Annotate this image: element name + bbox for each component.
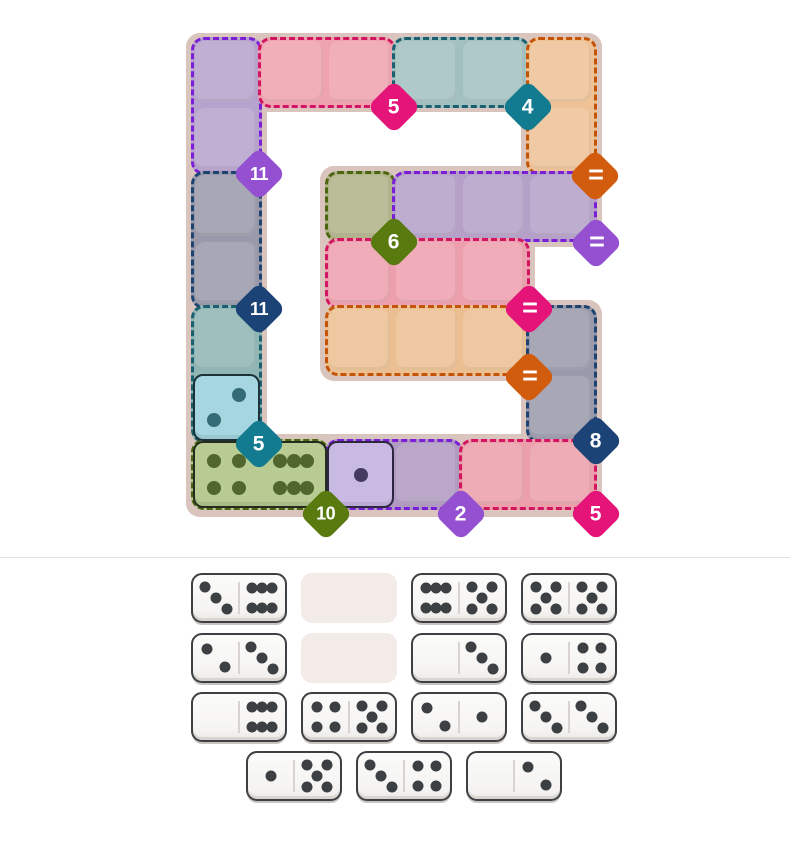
pip bbox=[596, 642, 607, 653]
pip bbox=[377, 723, 388, 734]
region-cell bbox=[262, 41, 323, 102]
pip bbox=[541, 712, 552, 723]
badge-label: = bbox=[522, 362, 538, 389]
domino-face-left bbox=[193, 575, 239, 621]
pip bbox=[232, 481, 246, 495]
badge-label: = bbox=[589, 228, 605, 255]
tray-domino-2-1[interactable] bbox=[411, 692, 507, 742]
pip bbox=[232, 388, 246, 402]
pip bbox=[300, 481, 314, 495]
pip bbox=[267, 582, 278, 593]
pip bbox=[273, 481, 287, 495]
tray-domino-6-5[interactable] bbox=[411, 573, 507, 623]
badge-label: 5 bbox=[253, 434, 265, 455]
pip bbox=[220, 662, 231, 673]
pip bbox=[541, 780, 552, 791]
pip bbox=[376, 771, 387, 782]
tray-domino-0-3[interactable] bbox=[411, 633, 507, 683]
pip bbox=[356, 723, 367, 734]
tray-domino-3-3[interactable] bbox=[521, 692, 617, 742]
pip bbox=[587, 593, 598, 604]
domino-divider bbox=[293, 760, 295, 792]
domino-face-right bbox=[349, 694, 395, 740]
badge-label: 11 bbox=[250, 300, 268, 318]
tray-domino-0-6[interactable] bbox=[191, 692, 287, 742]
pip bbox=[330, 701, 341, 712]
pip bbox=[596, 663, 607, 674]
region-pink-bottom[interactable] bbox=[459, 439, 597, 510]
pip bbox=[266, 771, 277, 782]
pip bbox=[311, 701, 322, 712]
pip bbox=[267, 663, 278, 674]
tray-domino-3-4[interactable] bbox=[356, 751, 452, 801]
pip bbox=[201, 643, 212, 654]
pip bbox=[300, 454, 314, 468]
pip bbox=[551, 581, 562, 592]
tray-empty-slot bbox=[301, 633, 397, 683]
tray-domino-5-5[interactable] bbox=[521, 573, 617, 623]
pip bbox=[367, 712, 378, 723]
pip bbox=[477, 653, 488, 664]
domino-face-right bbox=[459, 635, 505, 681]
pip bbox=[221, 603, 232, 614]
badge-label: 5 bbox=[388, 97, 400, 118]
tray-divider bbox=[0, 557, 790, 558]
region-cell bbox=[195, 41, 256, 102]
region-orange-mid[interactable] bbox=[325, 305, 530, 376]
domino-face-left bbox=[468, 753, 514, 799]
tray-row bbox=[191, 633, 617, 683]
pip bbox=[597, 581, 608, 592]
pip bbox=[597, 722, 608, 733]
pip bbox=[587, 712, 598, 723]
pip bbox=[330, 722, 341, 733]
pip bbox=[207, 413, 221, 427]
tray-domino-1-4[interactable] bbox=[521, 633, 617, 683]
pip bbox=[257, 653, 268, 664]
tray-row bbox=[191, 692, 617, 742]
domino-face-left bbox=[248, 753, 294, 799]
domino-face-left bbox=[523, 694, 569, 740]
pip bbox=[431, 781, 442, 792]
pip bbox=[551, 722, 562, 733]
pip bbox=[412, 781, 423, 792]
domino-puzzle-app: 5411=6=11==851025 bbox=[0, 0, 790, 842]
pip bbox=[597, 604, 608, 615]
domino-face-right bbox=[404, 753, 450, 799]
domino-divider bbox=[458, 582, 460, 614]
pip bbox=[441, 582, 452, 593]
tray-domino-0-2[interactable] bbox=[466, 751, 562, 801]
badge-label: 2 bbox=[455, 504, 467, 525]
domino-face-left bbox=[358, 753, 404, 799]
pip bbox=[311, 722, 322, 733]
pip bbox=[576, 581, 587, 592]
domino-face-right bbox=[459, 694, 505, 740]
pip bbox=[312, 771, 323, 782]
tray-row bbox=[246, 751, 562, 801]
pip bbox=[273, 454, 287, 468]
pip bbox=[577, 642, 588, 653]
pip bbox=[541, 593, 552, 604]
pip bbox=[287, 481, 301, 495]
region-cell bbox=[329, 309, 390, 370]
pip bbox=[431, 760, 442, 771]
pip bbox=[530, 604, 541, 615]
domino-face-right bbox=[239, 575, 285, 621]
tray-row bbox=[191, 573, 617, 623]
domino-face-left bbox=[523, 635, 569, 681]
pip bbox=[576, 604, 587, 615]
pip bbox=[466, 581, 477, 592]
pip bbox=[487, 581, 498, 592]
region-cell bbox=[463, 175, 524, 236]
pip bbox=[356, 700, 367, 711]
pip bbox=[421, 702, 432, 713]
pip bbox=[267, 603, 278, 614]
domino-face-left bbox=[193, 635, 239, 681]
pip bbox=[576, 701, 587, 712]
badge-label: = bbox=[522, 294, 538, 321]
pip bbox=[577, 663, 588, 674]
domino-divider bbox=[568, 582, 570, 614]
tray-empty-slot bbox=[301, 573, 397, 623]
pip bbox=[267, 701, 278, 712]
pip bbox=[354, 468, 368, 482]
pip bbox=[551, 604, 562, 615]
pip bbox=[530, 701, 541, 712]
domino-divider bbox=[568, 642, 570, 674]
pip bbox=[287, 454, 301, 468]
region-cell bbox=[396, 309, 457, 370]
pip bbox=[211, 593, 222, 604]
pip bbox=[246, 642, 257, 653]
pip bbox=[301, 782, 312, 793]
region-pink-mid[interactable] bbox=[325, 238, 530, 309]
badge-label: 10 bbox=[316, 505, 335, 523]
domino-divider bbox=[568, 701, 570, 733]
pip bbox=[207, 481, 221, 495]
domino-face-left bbox=[413, 575, 459, 621]
domino-divider bbox=[458, 701, 460, 733]
region-cell bbox=[396, 443, 457, 504]
domino-divider bbox=[458, 642, 460, 674]
pip bbox=[530, 581, 541, 592]
domino-face-left bbox=[303, 694, 349, 740]
domino-face-left bbox=[413, 635, 459, 681]
domino-divider bbox=[238, 582, 240, 614]
domino-face-left bbox=[413, 694, 459, 740]
domino-face-right bbox=[239, 694, 285, 740]
pip bbox=[365, 760, 376, 771]
domino-divider bbox=[513, 760, 515, 792]
badge-label: = bbox=[588, 161, 604, 188]
pip bbox=[477, 593, 488, 604]
domino-divider bbox=[348, 701, 350, 733]
domino-face-right bbox=[239, 635, 285, 681]
pip bbox=[487, 663, 498, 674]
pip bbox=[466, 642, 477, 653]
pip bbox=[207, 454, 221, 468]
pip bbox=[466, 604, 477, 615]
pip bbox=[322, 759, 333, 770]
badge-label: 11 bbox=[250, 165, 268, 183]
tile-face bbox=[329, 443, 392, 506]
domino-face-left bbox=[523, 575, 569, 621]
domino-face-right bbox=[459, 575, 505, 621]
tray-domino-3-6[interactable] bbox=[191, 573, 287, 623]
pip bbox=[522, 761, 533, 772]
badge-label: 6 bbox=[388, 232, 400, 253]
pip bbox=[267, 722, 278, 733]
pip bbox=[377, 700, 388, 711]
domino-face-left bbox=[193, 694, 239, 740]
pip bbox=[541, 653, 552, 664]
domino-face-right bbox=[569, 694, 615, 740]
domino-divider bbox=[238, 701, 240, 733]
domino-face-right bbox=[569, 575, 615, 621]
pip bbox=[412, 760, 423, 771]
badge-label: 8 bbox=[590, 431, 602, 452]
pip bbox=[487, 604, 498, 615]
domino-divider bbox=[238, 642, 240, 674]
pip bbox=[477, 712, 488, 723]
tray-domino-1-5[interactable] bbox=[246, 751, 342, 801]
pip bbox=[441, 603, 452, 614]
domino-face-right bbox=[569, 635, 615, 681]
tray-domino-4-5[interactable] bbox=[301, 692, 397, 742]
pip bbox=[386, 781, 397, 792]
pip bbox=[200, 582, 211, 593]
region-purple-mid[interactable] bbox=[392, 171, 597, 242]
region-cell bbox=[463, 443, 524, 504]
badge-label: 5 bbox=[590, 504, 602, 525]
domino-face-right bbox=[514, 753, 560, 799]
pip bbox=[322, 782, 333, 793]
domino-face-right bbox=[294, 753, 340, 799]
domino-divider bbox=[403, 760, 405, 792]
pip bbox=[301, 759, 312, 770]
pip bbox=[440, 721, 451, 732]
badge-label: 4 bbox=[522, 97, 534, 118]
tray-domino-2-3[interactable] bbox=[191, 633, 287, 683]
region-cell bbox=[463, 242, 524, 303]
